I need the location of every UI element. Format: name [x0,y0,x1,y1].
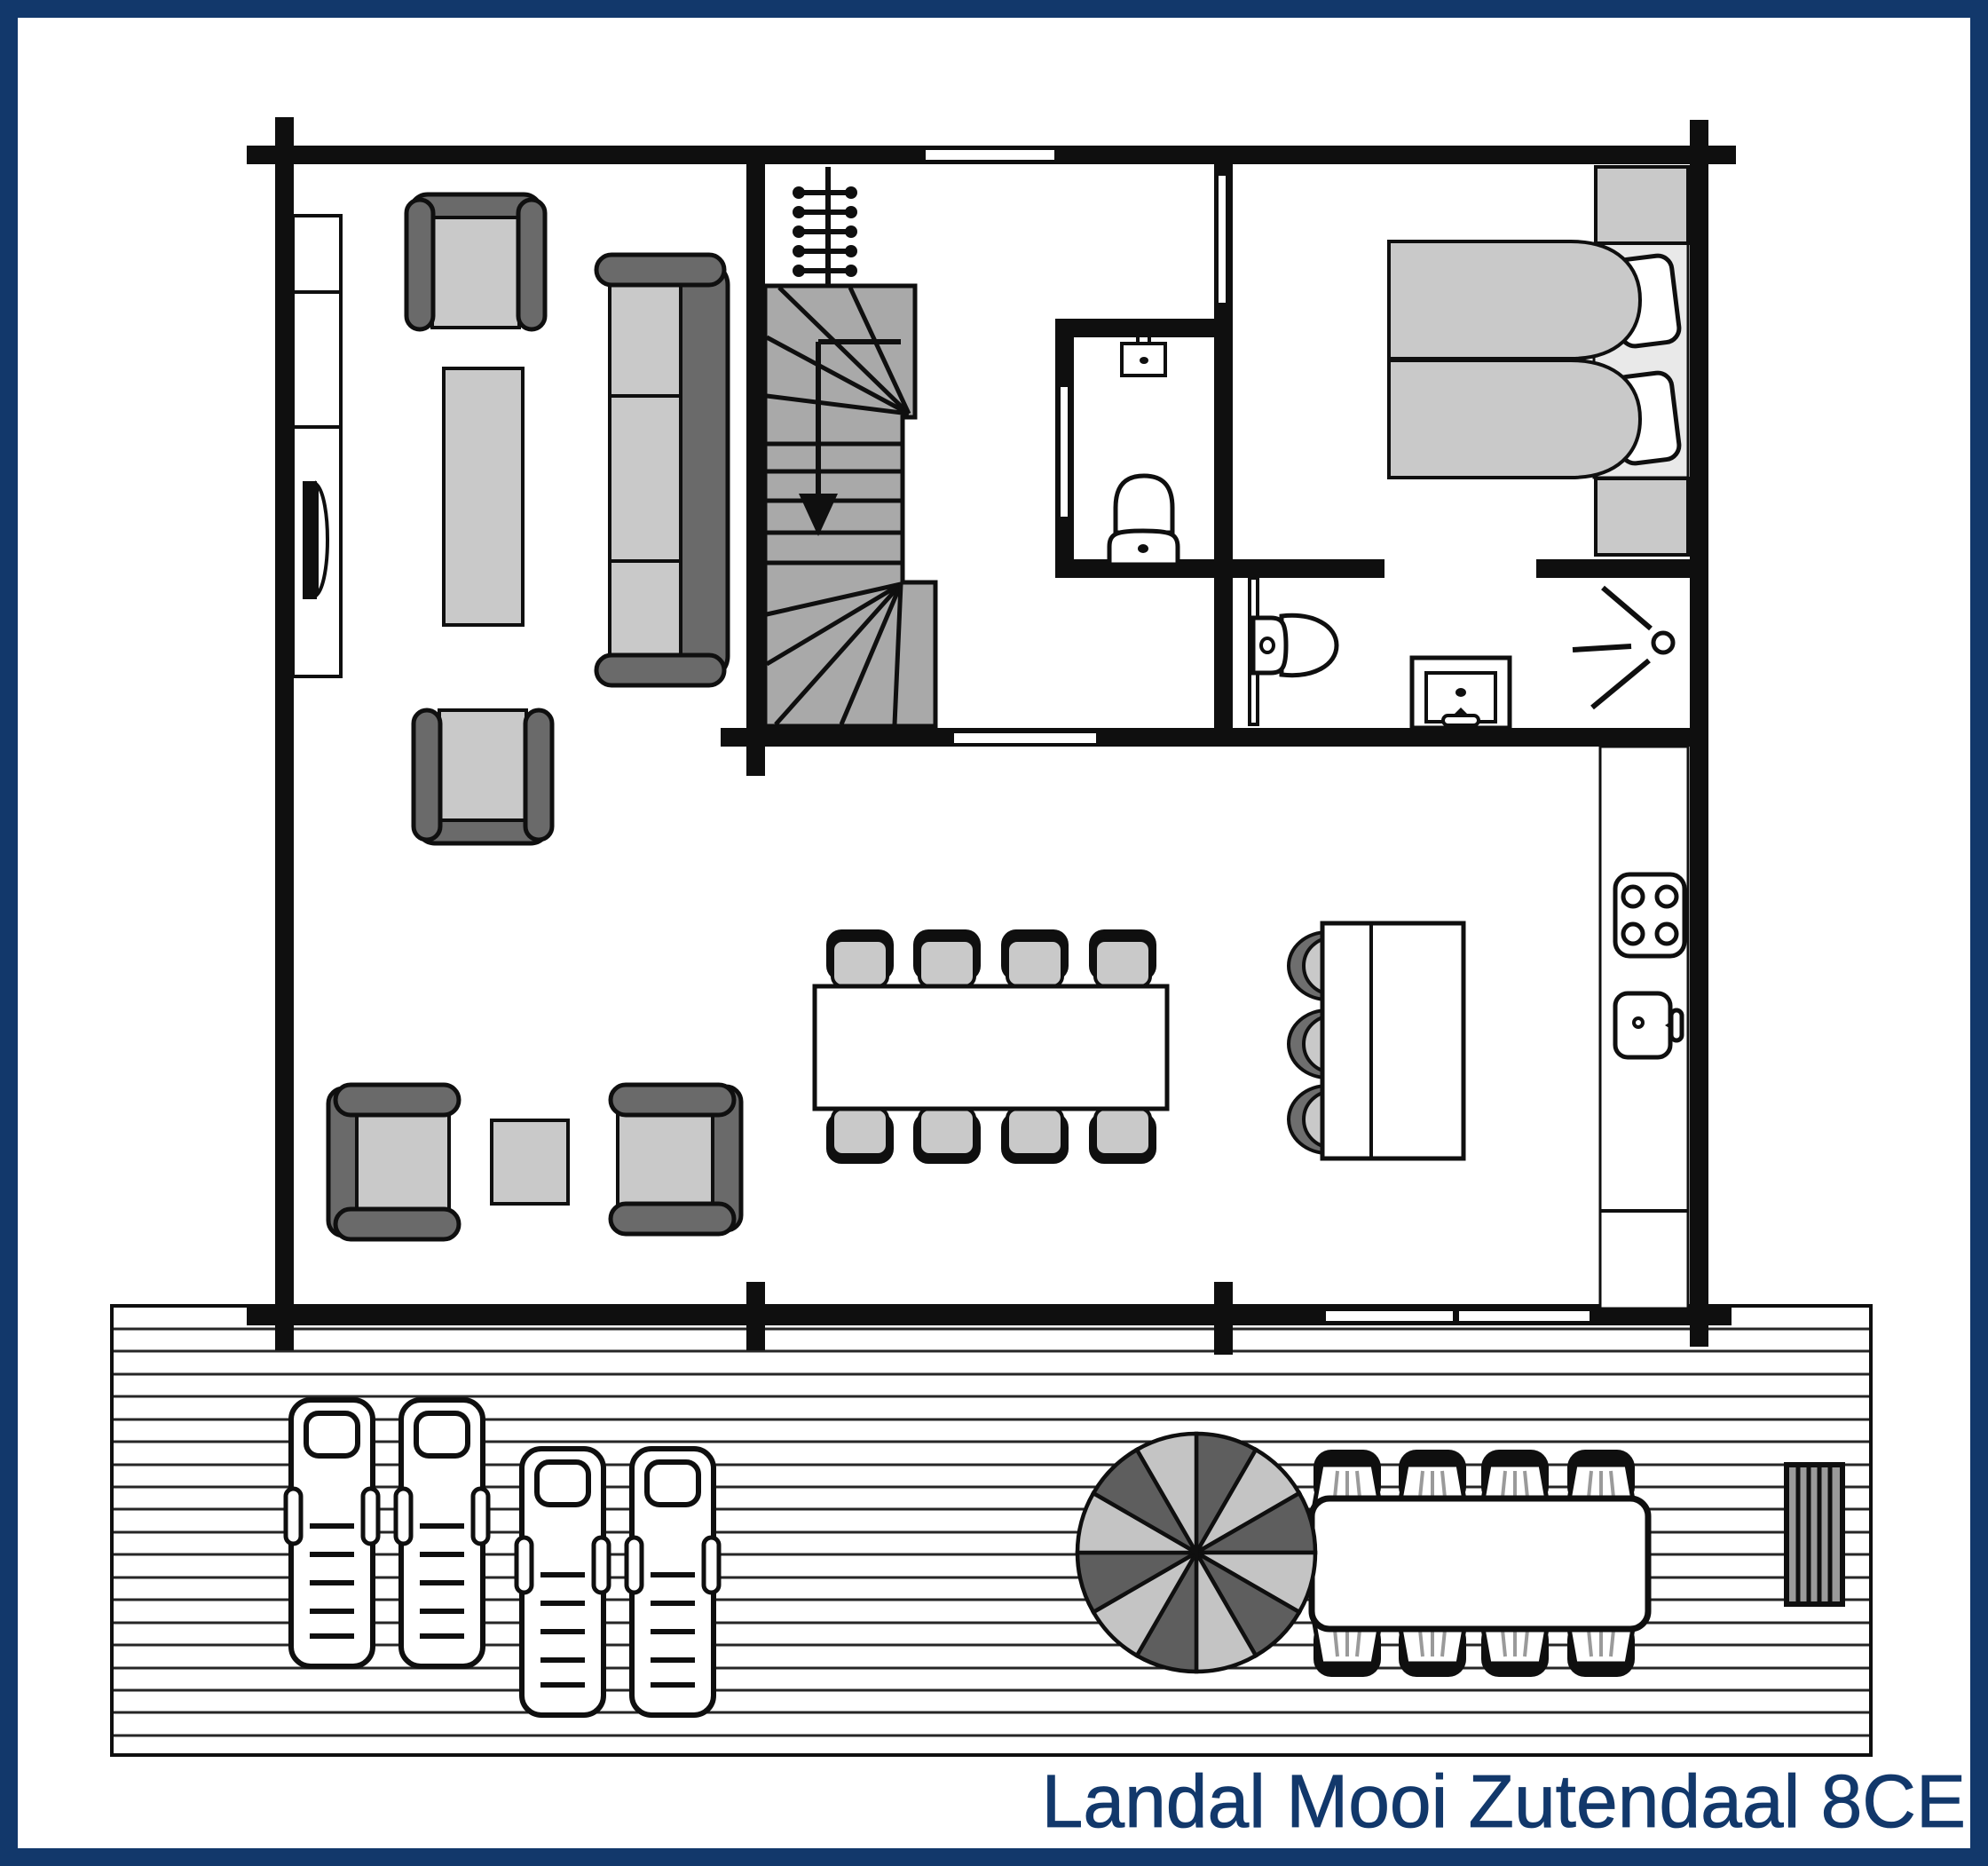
svg-text:Landal Mooi Zutendaal 8CE: Landal Mooi Zutendaal 8CE [1042,1759,1966,1843]
